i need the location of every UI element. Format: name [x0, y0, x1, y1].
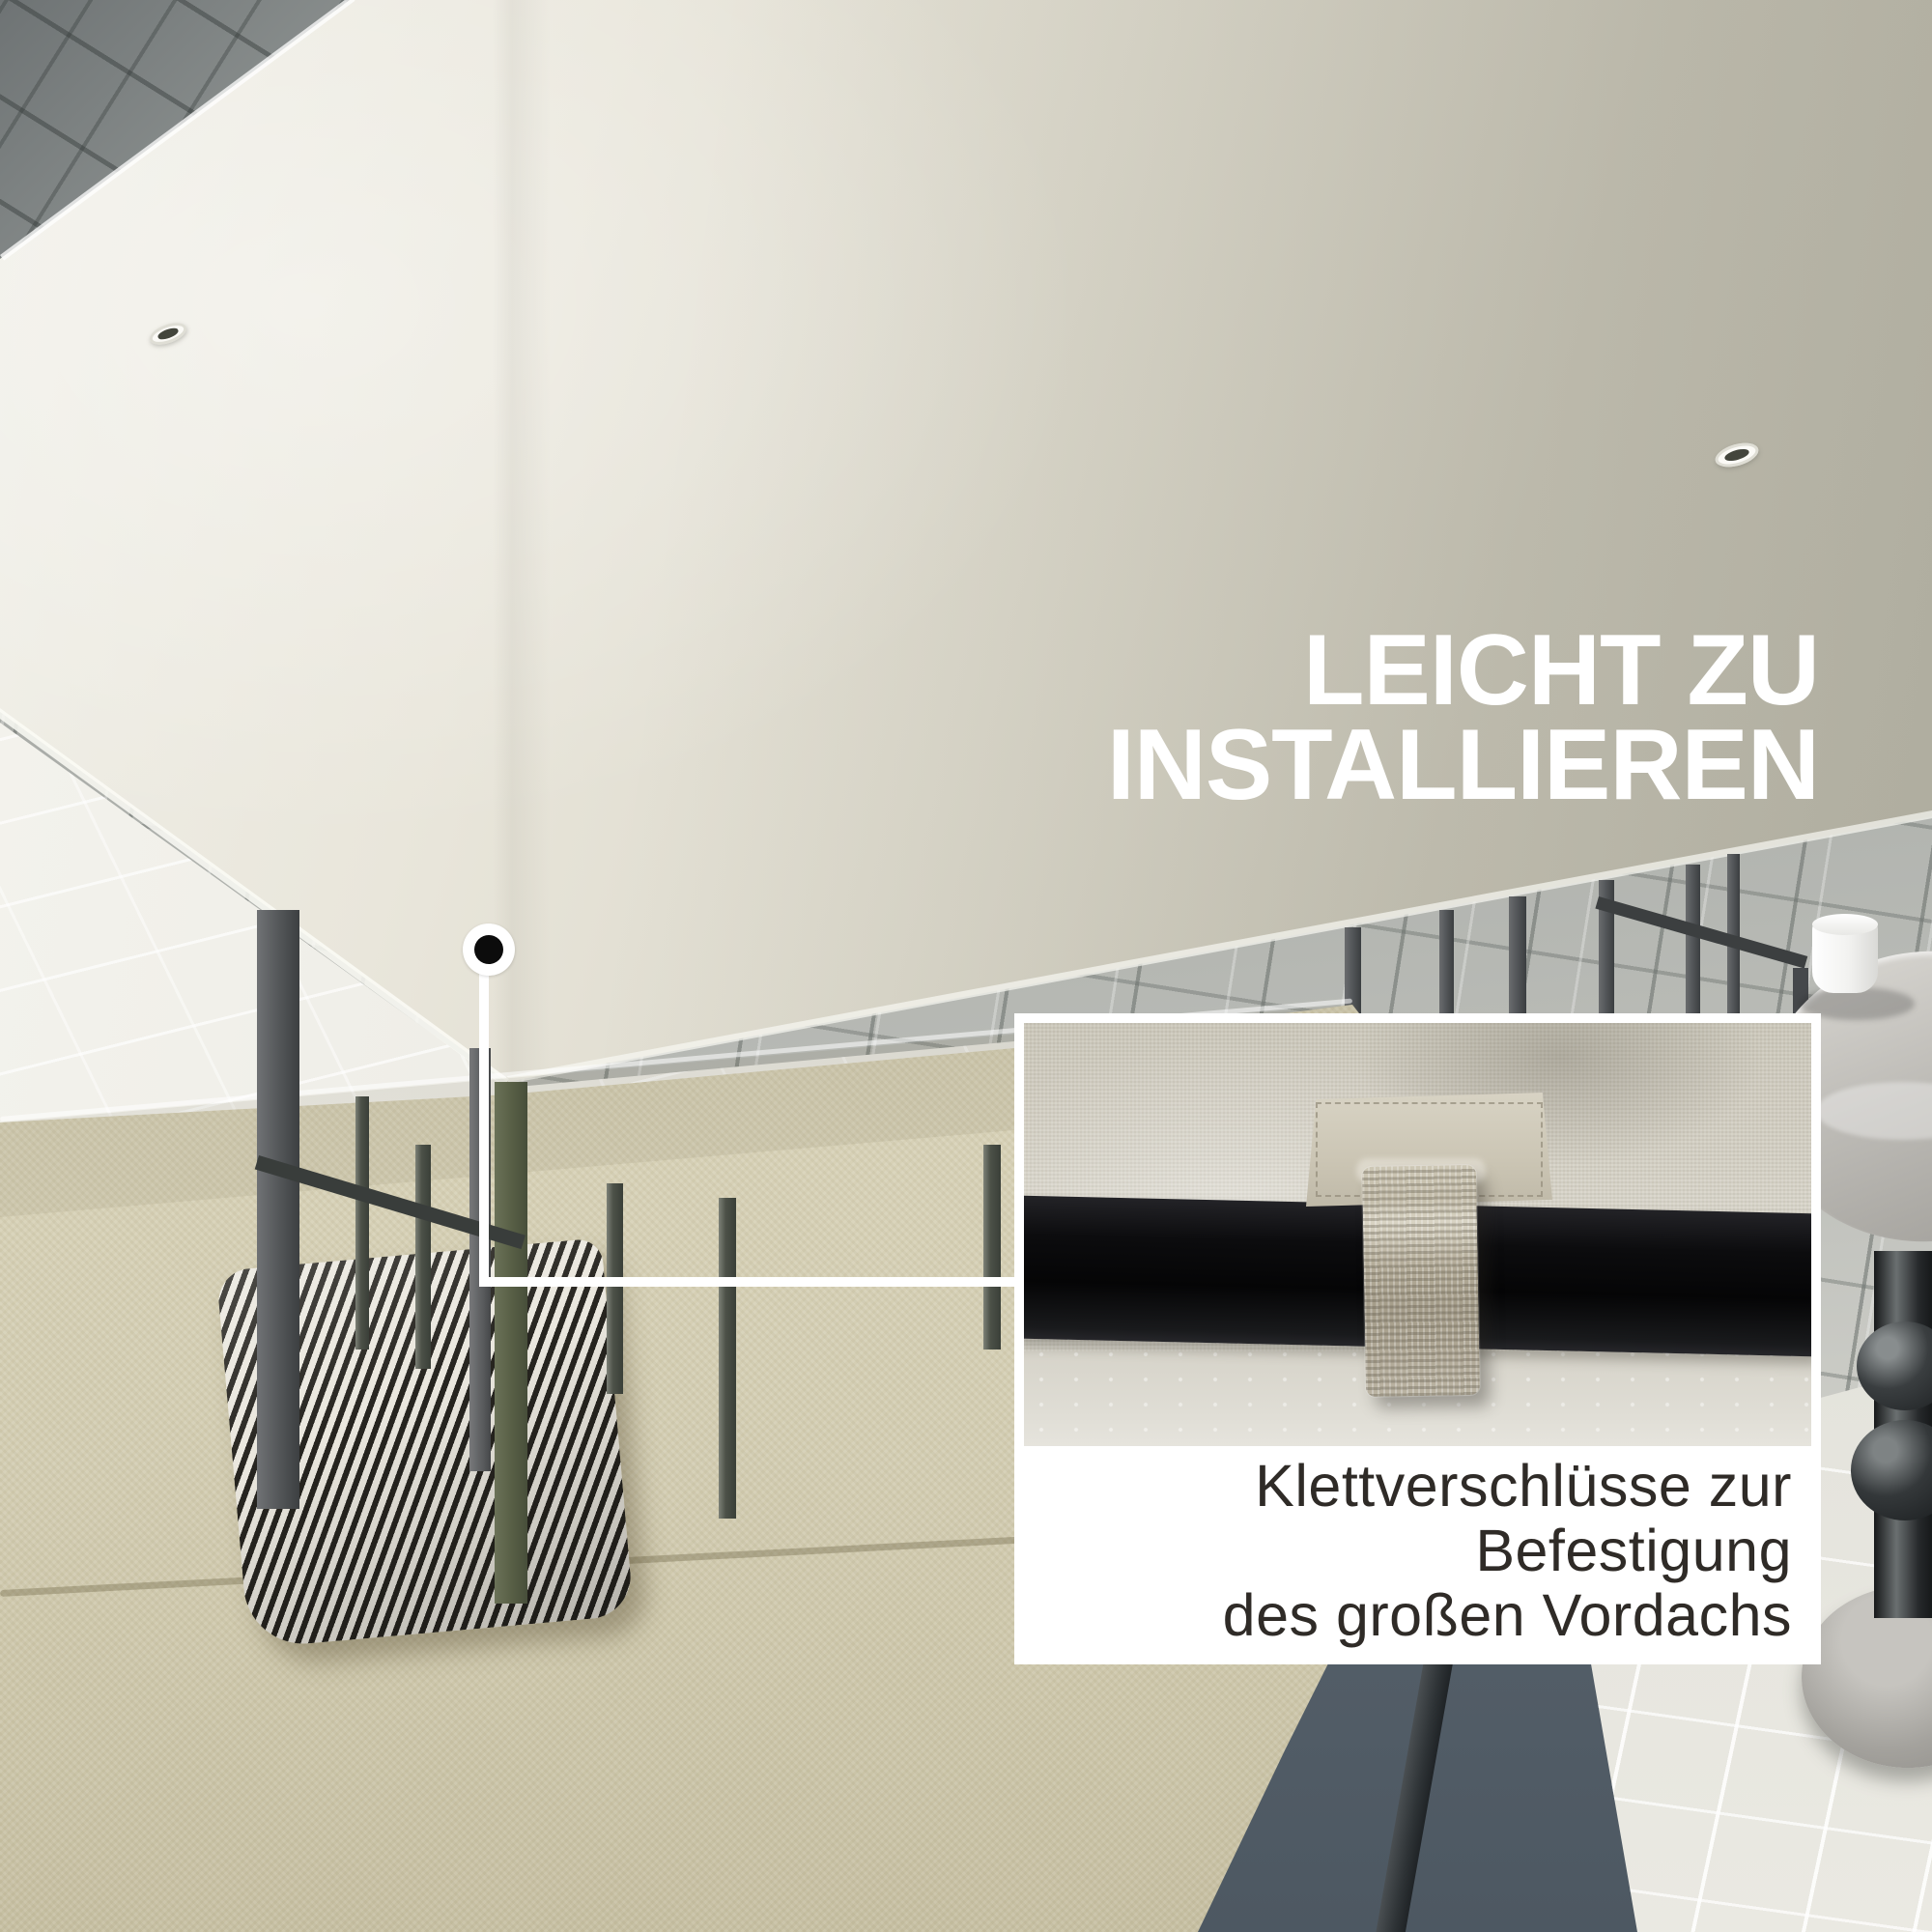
- product-marketing-image: LEICHT ZU INSTALLIEREN Klettverschlüsse …: [0, 0, 1932, 1932]
- lattice-bar: [719, 1198, 736, 1519]
- lattice-bar: [355, 1096, 369, 1350]
- callout-dot: [463, 923, 515, 976]
- inset-caption: Klettverschlüsse zur Befestigung des gro…: [1024, 1446, 1811, 1655]
- grommet-hole: [156, 327, 180, 342]
- caption-line-2: Befestigung: [1475, 1519, 1792, 1583]
- lattice-bar: [983, 1145, 1001, 1350]
- headline: LEICHT ZU INSTALLIEREN: [853, 623, 1819, 812]
- lattice-bar: [607, 1183, 623, 1394]
- headline-line-1: LEICHT ZU: [853, 623, 1819, 718]
- grommet-hole: [1723, 447, 1749, 463]
- callout-dot-center: [474, 935, 503, 964]
- callout-connector-horizontal: [479, 1277, 1022, 1287]
- detail-inset-box: Klettverschlüsse zur Befestigung des gro…: [1014, 1013, 1821, 1664]
- velcro-strap: [1362, 1165, 1480, 1397]
- lattice-bar: [415, 1145, 431, 1369]
- caption-line-1: Klettverschlüsse zur: [1255, 1454, 1792, 1519]
- gazebo-corner-post: [495, 1082, 527, 1604]
- gazebo-post: [257, 910, 299, 1509]
- white-cup-rim: [1812, 914, 1878, 935]
- headline-line-2: INSTALLIEREN: [853, 718, 1819, 812]
- caption-line-3: des großen Vordachs: [1223, 1583, 1792, 1648]
- detail-inset-photo: [1024, 1023, 1811, 1446]
- callout-connector-vertical: [479, 966, 489, 1287]
